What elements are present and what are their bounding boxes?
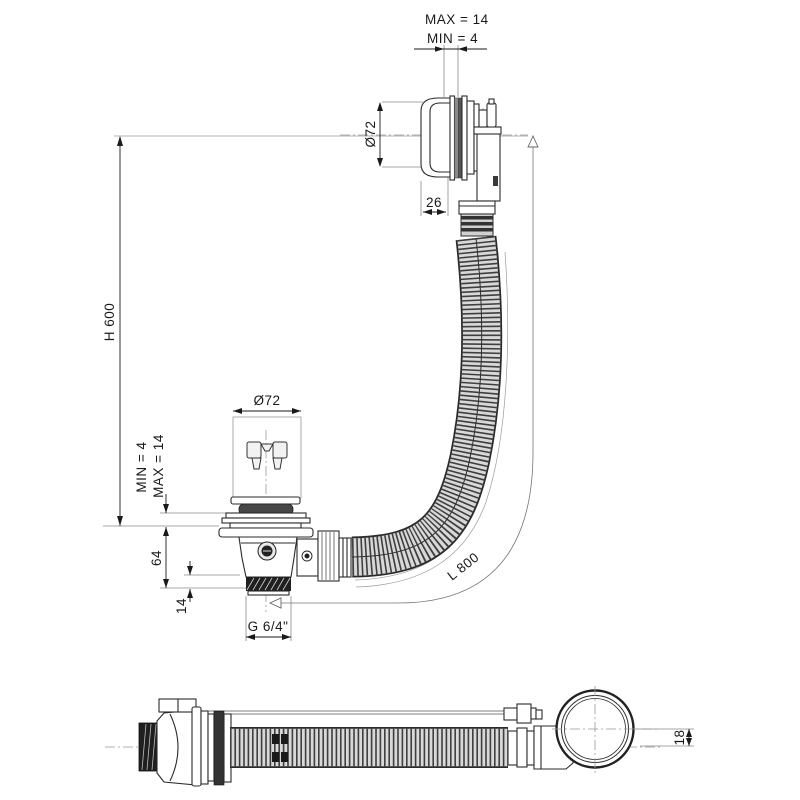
label-thread-length: 14 — [174, 598, 189, 614]
label-hose-length: L 800 — [445, 550, 482, 584]
cable-knob — [479, 110, 487, 127]
cable-connector — [504, 704, 542, 723]
label-drain-min: MIN = 4 — [134, 441, 149, 492]
overflow-assembly — [421, 96, 501, 236]
side-drain-end — [139, 699, 231, 786]
label-height: H 600 — [102, 303, 117, 342]
adjuster-screw — [247, 442, 287, 469]
side-overflow-end — [504, 686, 660, 773]
label-top-diameter: Ø72 — [363, 120, 378, 147]
label-cap-depth: 26 — [426, 195, 442, 210]
overflow-cap — [421, 98, 451, 177]
technical-drawing: L 800 — [0, 0, 800, 800]
label-side-offset: 18 — [672, 729, 687, 745]
label-drain-depth: 64 — [149, 550, 164, 566]
hose-nut — [318, 531, 339, 581]
technical-drawing-page: L 800 — [0, 0, 800, 800]
label-thread-size: G 6/4" — [248, 619, 289, 634]
label-top-max: MAX = 14 — [425, 12, 489, 27]
side-offset-dimension: 18 — [634, 729, 694, 746]
overflow-body — [477, 127, 500, 201]
label-drain-diameter: Ø72 — [253, 393, 280, 408]
pull-cable — [196, 711, 505, 714]
drain-flange — [219, 528, 313, 537]
corrugated-hose-side — [230, 734, 508, 762]
label-top-min: MIN = 4 — [427, 31, 478, 46]
plug-phantom-outline — [233, 417, 301, 498]
plug-disc — [231, 497, 300, 504]
hose-spigot — [459, 201, 495, 214]
side-view: 18 — [105, 686, 694, 786]
drain-assembly — [219, 417, 351, 595]
corrugated-hose-main — [352, 238, 482, 557]
main-view: L 800 — [102, 12, 538, 641]
label-drain-max: MAX = 14 — [151, 434, 166, 498]
open-arrow-up-icon — [528, 136, 538, 147]
open-arrow-left-icon — [270, 598, 281, 608]
